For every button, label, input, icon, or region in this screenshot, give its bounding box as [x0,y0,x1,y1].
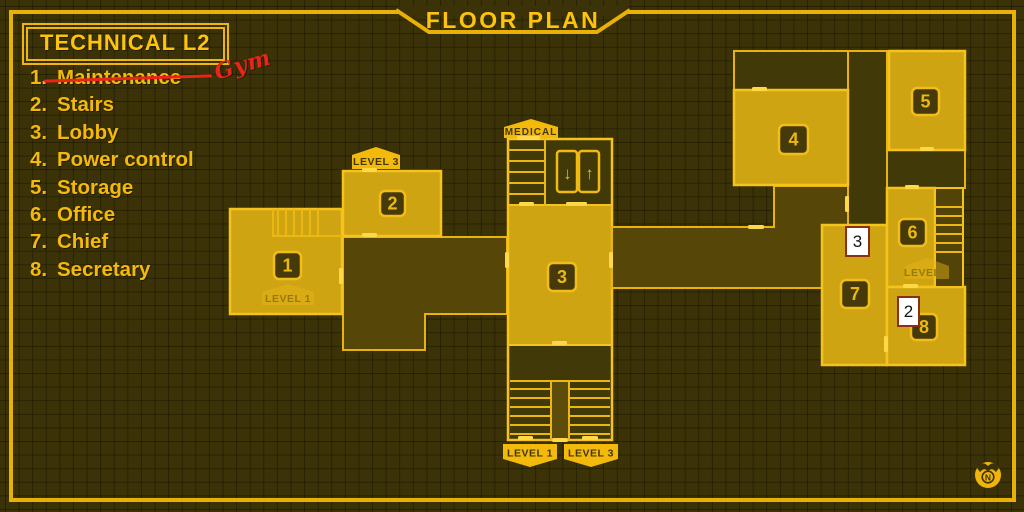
legend-item-label: Chief [57,230,108,257]
legend-item-label: Office [57,203,115,230]
door-marker [518,436,533,440]
compass-label: N [985,473,991,483]
door-marker [752,87,767,91]
elevator-down-icon: ↓ [563,164,572,183]
legend-list: 1. Maintenance Gym 2. Stairs 3. Lobby 4.… [30,66,194,285]
legend-item-number: 7. [30,230,57,257]
legend-item-number: 2. [30,93,57,120]
legend-item-power-control: 4. Power control [30,148,194,175]
door-marker [552,341,567,345]
level-badge-label: LEVEL 3 [353,156,399,168]
legend-item-storage: 5. Storage [30,176,194,203]
legend-item-number: 4. [30,148,57,175]
door-marker [748,225,764,229]
level-badge-label: LEVEL 3 [568,448,614,460]
door-marker [519,202,534,206]
door-marker [903,284,918,288]
door-marker [552,438,568,442]
door-marker [517,136,540,140]
level-badge-label: LEVEL 1 [265,293,311,305]
room-6-number: 6 [907,223,917,243]
door-marker [339,268,343,284]
door-marker [582,436,598,440]
legend-item-chief: 7. Chief [30,230,194,257]
door-marker [845,196,849,212]
stair-landing [551,381,569,440]
legend-item-lobby: 3. Lobby [30,121,194,148]
legend-item-number: 8. [30,258,57,285]
legend-item-number: 3. [30,121,57,148]
room-3-number: 3 [557,267,567,287]
left-building: LEVEL 3 LEVEL 1 1 2 [230,147,507,350]
legend-item-secretary: 8. Secretary [30,258,194,285]
floor-plan-screen: FLOOR PLAN LEVEL 3 LEVEL 1 1 2 [0,0,1024,512]
door-marker [505,252,509,268]
room-8-number: 8 [919,317,929,337]
right-building: LEVEL 1 4 5 6 7 8 [734,51,965,365]
mark-tag-3[interactable]: 3 [845,226,870,257]
door-marker [566,202,587,206]
legend-item-label: Stairs [57,93,114,120]
legend-item-stairs: 2. Stairs [30,93,194,120]
level-badge-label: LEVEL 1 [507,448,553,460]
compass-north-icon: N [975,462,1001,488]
legend-item-number: 6. [30,203,57,230]
door-marker [362,168,377,172]
legend-title-box: TECHNICAL L2 [22,23,229,65]
room-5-number: 5 [920,92,930,112]
page-title: FLOOR PLAN [426,7,601,33]
level-badge-label: LEVEL 1 [904,267,950,279]
legend-item-label: Lobby [57,121,119,148]
legend-title: TECHNICAL L2 [26,27,225,61]
room-4-number: 4 [788,130,798,150]
door-marker [362,233,377,237]
room-7-number: 7 [850,284,860,304]
vertical-hall-area [848,51,887,225]
room-1-number: 1 [282,256,292,276]
legend-item-office: 6. Office [30,203,194,230]
legend-item-label: Secretary [57,258,150,285]
door-marker [920,147,934,151]
elevator-up-icon: ↑ [585,164,594,183]
door-marker [609,252,613,268]
legend-item-label: Storage [57,176,133,203]
east-hall-area [887,150,965,188]
legend-item-label: Power control [57,148,194,175]
legend-item-number: 5. [30,176,57,203]
corridor-east [612,186,848,288]
door-marker [905,185,919,189]
mark-tag-2[interactable]: 2 [897,296,920,327]
legend-item-maintenance: 1. Maintenance Gym [30,66,194,93]
corridor-west [343,237,507,350]
room-2-number: 2 [387,194,397,214]
door-marker [884,336,888,352]
